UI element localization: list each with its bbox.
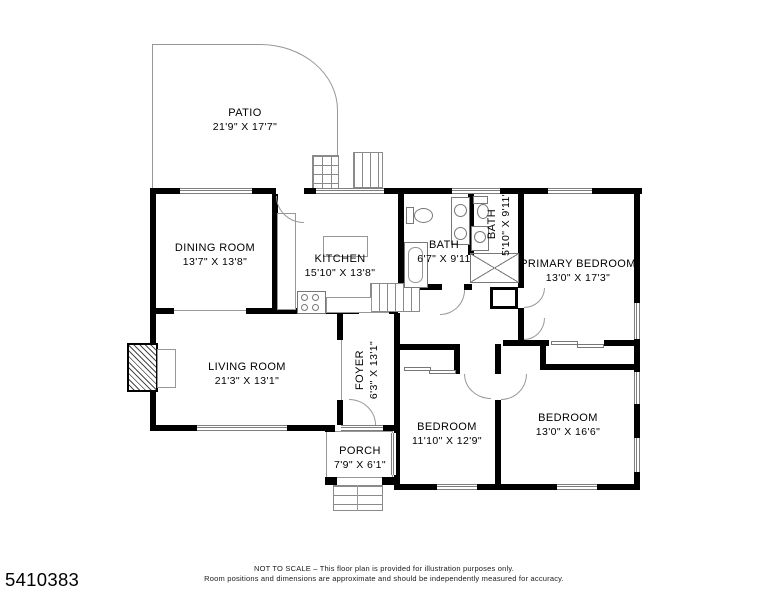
window (197, 425, 287, 431)
sliding-door (404, 367, 431, 371)
sliding-door (551, 341, 578, 345)
room-dims: 21'9" X 17'7" (213, 120, 278, 134)
wall-closet-bottom (540, 364, 634, 370)
window (634, 303, 640, 339)
room-label-dining: DINING ROOM 13'7" X 13'8" (175, 241, 255, 269)
window (180, 188, 252, 194)
bedroom2-door-arc (501, 374, 527, 400)
room-label-patio: PATIO 21'9" X 17'7" (213, 106, 278, 134)
wall-bedroom2-west-a (495, 344, 501, 374)
kitchen-door-opening (276, 188, 304, 194)
room-dims: 13'0" X 16'6" (536, 425, 601, 439)
kitchen-counter-left (277, 213, 296, 310)
room-label-bath1: BATH 6'7" X 9'11 (417, 238, 470, 266)
front-steps-divider (357, 485, 358, 511)
room-label-living: LIVING ROOM 21'3" X 13'1" (208, 360, 286, 388)
room-name: BATH (485, 179, 499, 269)
porch-corner (382, 477, 398, 485)
hall-door-arc (524, 318, 545, 340)
front-steps (333, 485, 383, 511)
burner (312, 304, 319, 311)
room-dims: 5'10" X 9'11" (499, 179, 513, 269)
wall-primary-bottom-b (604, 340, 634, 346)
room-dims: 13'7" X 13'8" (175, 255, 255, 269)
wall-foyer-west-b (337, 400, 343, 425)
room-dims: 7'9" X 6'1" (334, 458, 386, 472)
burner (301, 304, 308, 311)
rear-stoop (353, 152, 383, 188)
burner (301, 294, 308, 301)
wall-bedroom2-west-b (495, 400, 501, 490)
room-dims: 6'7" X 9'11 (417, 252, 470, 266)
window (437, 484, 477, 490)
room-label-bath2: BATH 5'10" X 9'11" (485, 179, 515, 269)
room-name: LIVING ROOM (208, 360, 286, 374)
room-dims: 15'10" X 13'8" (305, 266, 376, 280)
toilet-tank (406, 207, 414, 224)
patio-steps (312, 155, 339, 189)
room-dims: 11'10" X 12'9" (412, 434, 482, 448)
wall-baths-bottom-b (464, 284, 472, 290)
window (548, 188, 592, 194)
window (557, 484, 597, 490)
room-name: DINING ROOM (175, 241, 255, 255)
fireplace-hearth (157, 349, 176, 388)
room-label-bedroom2: BEDROOM 13'0" X 16'6" (536, 411, 601, 439)
sliding-door (429, 370, 456, 374)
toilet-bowl (414, 208, 433, 223)
window (634, 438, 640, 472)
room-name: PRIMARY BEDROOM (520, 257, 636, 271)
burner (312, 294, 319, 301)
sliding-door (577, 344, 604, 348)
room-dims: 21'3" X 13'1" (208, 374, 286, 388)
wall-foyer-west-a (337, 313, 343, 340)
linen-closet (490, 287, 518, 309)
room-dims: 6'3" X 13'1" (367, 325, 381, 415)
wall-dining-living-a (156, 308, 174, 314)
disclaimer: NOT TO SCALE – This floor plan is provid… (0, 564, 768, 584)
wall-bottom (394, 484, 640, 490)
porch-screen (391, 433, 396, 475)
room-name: PATIO (213, 106, 278, 120)
wall-closet1-top (398, 344, 460, 350)
window (316, 188, 384, 194)
room-label-bedroom1: BEDROOM 11'10" X 12'9" (412, 420, 482, 448)
primary-door-arc (524, 288, 545, 308)
opening-foyer-living (341, 340, 342, 400)
porch-corner (325, 425, 335, 432)
kitchen-counter-bottom (326, 297, 372, 313)
disclaimer-line1: NOT TO SCALE – This floor plan is provid… (0, 564, 768, 574)
disclaimer-line2: Room positions and dimensions are approx… (0, 574, 768, 584)
room-name: BEDROOM (412, 420, 482, 434)
window (634, 372, 640, 404)
porch-corner (325, 477, 337, 485)
room-name: BEDROOM (536, 411, 601, 425)
room-label-porch: PORCH 7'9" X 6'1" (334, 444, 386, 472)
opening-dining-living (174, 310, 246, 311)
floor-plan: PATIO 21'9" X 17'7" DINING ROOM 13'7" X … (0, 0, 768, 594)
room-label-foyer: FOYER 6'3" X 13'1" (353, 325, 383, 415)
room-name: KITCHEN (305, 252, 376, 266)
room-name: BATH (417, 238, 470, 252)
bath1-door-arc (440, 290, 465, 315)
room-name: PORCH (334, 444, 386, 458)
room-dims: 13'0" X 17'3" (520, 271, 636, 285)
sink (454, 204, 467, 217)
room-label-primary: PRIMARY BEDROOM 13'0" X 17'3" (520, 257, 636, 285)
room-name: FOYER (353, 325, 367, 415)
bedroom1-door-arc (464, 374, 491, 399)
room-label-kitchen: KITCHEN 15'10" X 13'8" (305, 252, 376, 280)
wall-left-upper (150, 188, 156, 345)
listing-id: 5410383 (5, 569, 79, 591)
fireplace (127, 343, 158, 392)
